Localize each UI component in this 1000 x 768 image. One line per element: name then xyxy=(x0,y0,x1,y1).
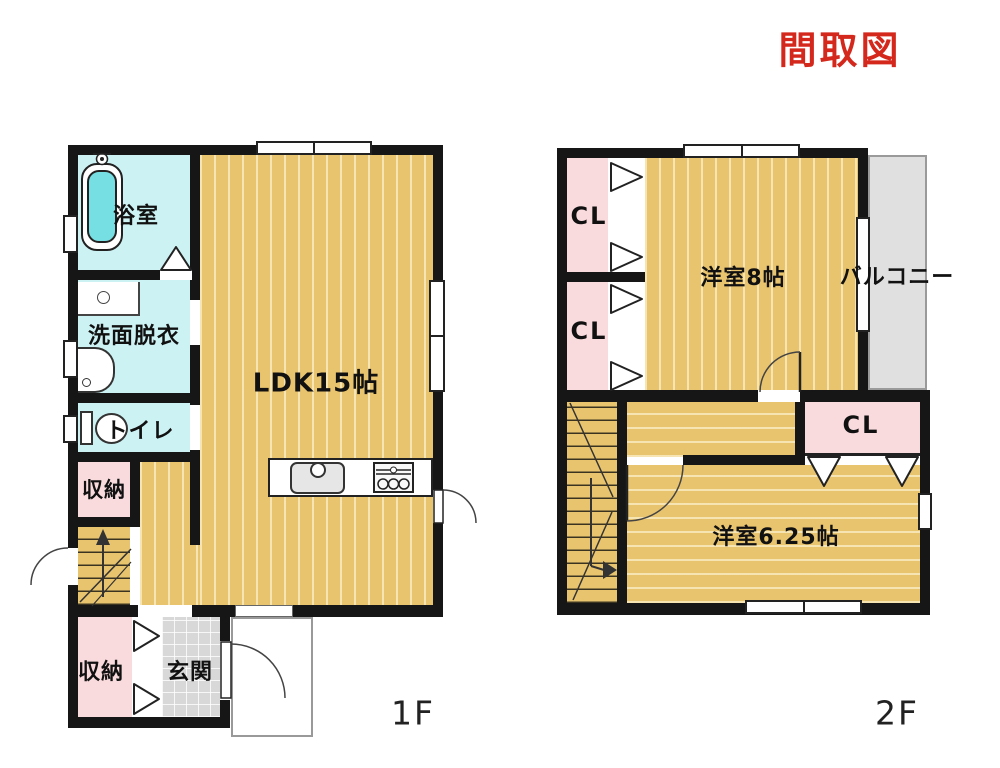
window xyxy=(63,340,78,378)
door-opening xyxy=(190,405,200,450)
wall-segment xyxy=(557,148,567,615)
wall-segment xyxy=(68,605,138,617)
label-closet-right: CL xyxy=(843,411,880,439)
label-floor1: 1F xyxy=(391,694,435,733)
label-bedroom625: 洋室6.25帖 xyxy=(712,519,839,551)
stairs-1f xyxy=(78,527,130,605)
door-arc xyxy=(31,548,68,585)
closet-front-line-2f xyxy=(805,453,920,456)
vanity-faucet-icon xyxy=(82,378,91,387)
wall-segment xyxy=(78,393,200,403)
wall-segment xyxy=(192,605,443,617)
window xyxy=(256,141,372,155)
window xyxy=(745,600,862,614)
wall-segment xyxy=(68,717,230,728)
wall-segment xyxy=(68,452,200,462)
label-closet-top: CL xyxy=(571,202,608,230)
wall-segment xyxy=(220,617,230,641)
label-balcony: バルコニー xyxy=(840,259,955,291)
label-floor2: 2F xyxy=(875,694,919,733)
door-opening xyxy=(190,300,200,345)
door-arc xyxy=(443,490,476,523)
entrance-porch-1f xyxy=(231,617,313,737)
wall-segment xyxy=(557,272,645,282)
label-bath: 浴室 xyxy=(113,198,159,230)
wall-segment xyxy=(68,270,160,280)
label-washroom: 洗面脱衣 xyxy=(88,318,180,350)
page-title: 間取図 xyxy=(778,20,901,75)
label-ldk: LDK15帖 xyxy=(253,363,379,400)
label-closet-mid: CL xyxy=(571,317,608,345)
wall-segment xyxy=(683,455,795,465)
window xyxy=(683,144,800,158)
label-entrance: 玄関 xyxy=(167,654,213,686)
wall-segment xyxy=(190,455,200,545)
label-toilet: トイレ xyxy=(105,413,174,445)
window xyxy=(235,605,293,617)
door-opening xyxy=(433,490,443,523)
label-storage-lower: 収納 xyxy=(78,654,124,686)
floor-plan-canvas: 間取図 浴室 洗面脱衣 トイレ 収納 LDK15帖 収納 玄関 1F CL CL… xyxy=(0,0,1000,768)
wall-segment xyxy=(220,700,230,728)
window xyxy=(63,415,78,443)
wall-segment xyxy=(68,517,140,527)
door-opening xyxy=(160,270,192,280)
closet-folding-door-1f xyxy=(132,617,162,717)
stairs-2f xyxy=(567,398,617,603)
washstand-drain-icon xyxy=(97,291,110,304)
wall-segment xyxy=(617,398,627,603)
window xyxy=(429,280,445,392)
hall-2f xyxy=(627,398,795,457)
door-leaf xyxy=(221,642,231,698)
window xyxy=(918,493,932,530)
door-opening xyxy=(758,390,800,402)
wall-segment xyxy=(557,603,930,615)
door-opening xyxy=(68,548,78,585)
toilet-tank-icon xyxy=(80,411,93,445)
kitchen-faucet-icon xyxy=(310,462,326,478)
label-bedroom8: 洋室8帖 xyxy=(700,260,785,292)
wall-segment xyxy=(557,390,930,402)
label-storage-upper: 収納 xyxy=(82,474,126,504)
wall-segment xyxy=(130,462,140,517)
window xyxy=(63,215,78,253)
